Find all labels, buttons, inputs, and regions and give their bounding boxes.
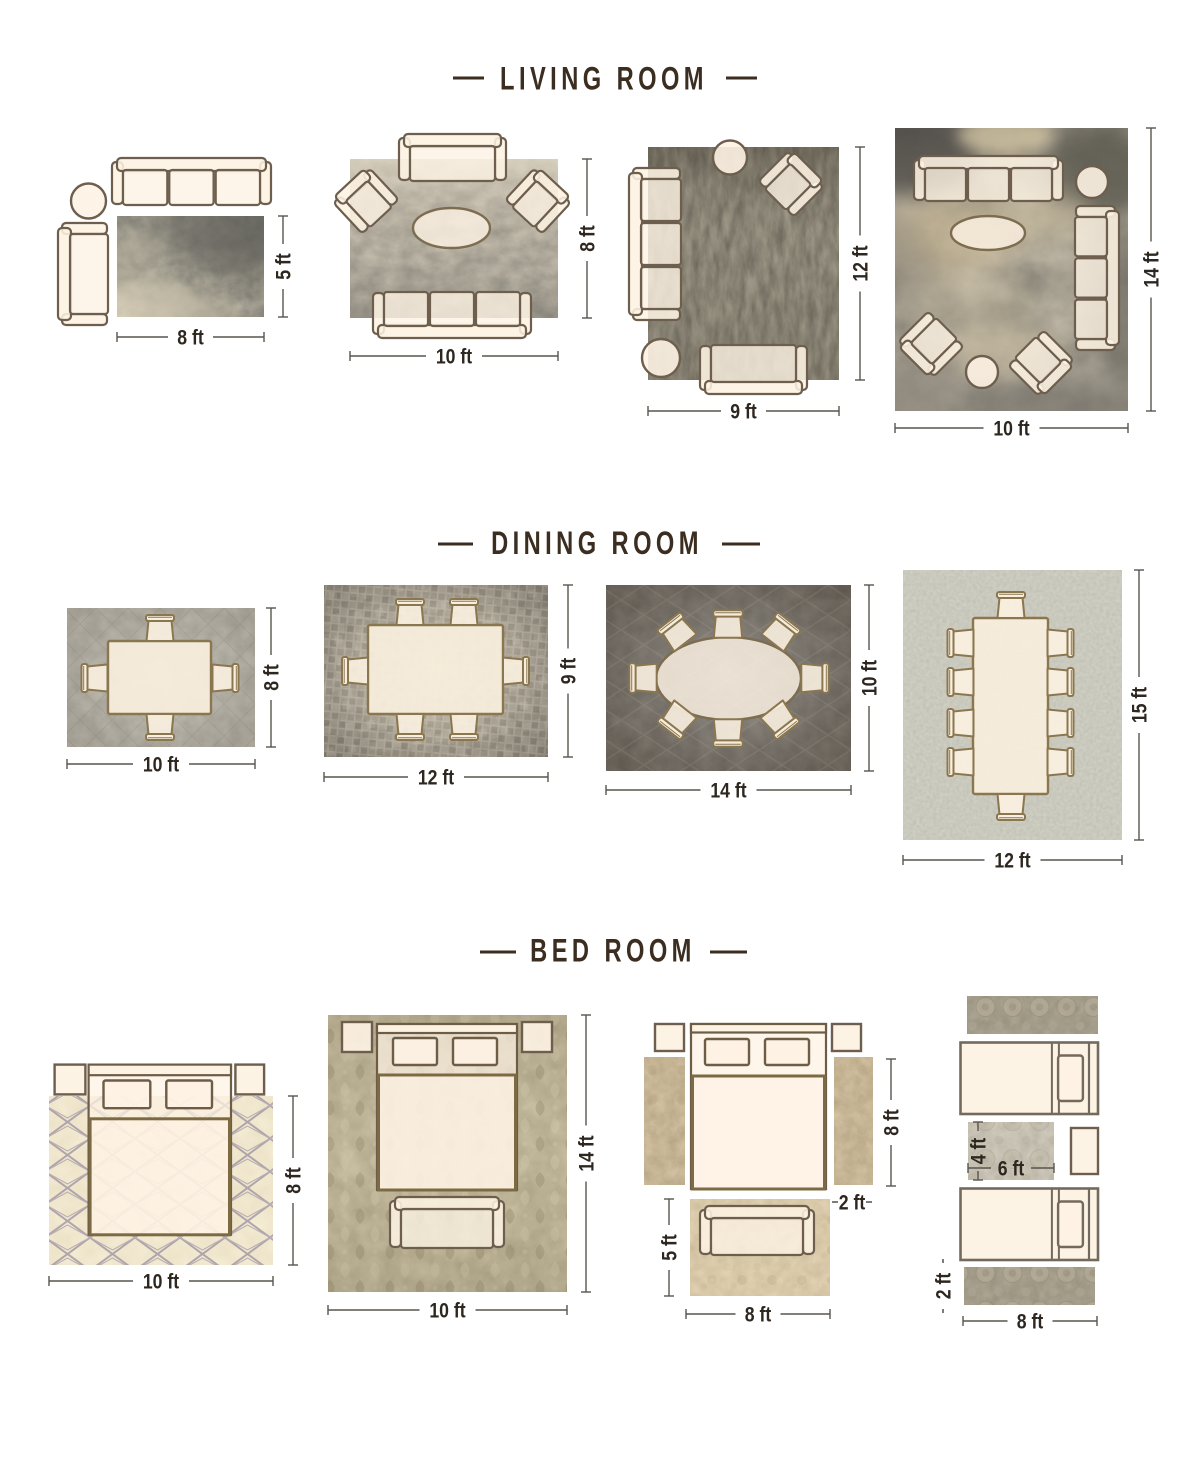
svg-text:14 ft: 14 ft xyxy=(1140,251,1164,288)
svg-text:9 ft: 9 ft xyxy=(557,657,581,684)
svg-text:8 ft: 8 ft xyxy=(282,1167,306,1194)
svg-text:12 ft: 12 ft xyxy=(418,766,455,790)
svg-text:8 ft: 8 ft xyxy=(1017,1310,1044,1334)
svg-text:2 ft: 2 ft xyxy=(932,1272,956,1299)
svg-text:10 ft: 10 ft xyxy=(993,417,1030,441)
svg-text:10 ft: 10 ft xyxy=(858,659,882,696)
svg-text:12 ft: 12 ft xyxy=(849,245,873,282)
svg-text:DINING ROOM: DINING ROOM xyxy=(491,526,703,561)
svg-text:8 ft: 8 ft xyxy=(177,326,204,350)
svg-text:8 ft: 8 ft xyxy=(260,664,284,691)
svg-text:4 ft: 4 ft xyxy=(967,1137,991,1164)
svg-text:5 ft: 5 ft xyxy=(658,1234,682,1261)
svg-text:8 ft: 8 ft xyxy=(576,225,600,252)
svg-text:10 ft: 10 ft xyxy=(429,1299,466,1323)
svg-text:8 ft: 8 ft xyxy=(745,1303,772,1327)
svg-text:14 ft: 14 ft xyxy=(710,779,747,803)
svg-text:12 ft: 12 ft xyxy=(994,849,1031,873)
svg-text:10 ft: 10 ft xyxy=(436,345,473,369)
svg-text:9 ft: 9 ft xyxy=(730,400,757,424)
svg-text:BED ROOM: BED ROOM xyxy=(530,933,696,968)
svg-text:2 ft: 2 ft xyxy=(839,1191,866,1215)
svg-text:5 ft: 5 ft xyxy=(272,253,296,280)
svg-text:LIVING ROOM: LIVING ROOM xyxy=(500,61,708,96)
svg-text:6 ft: 6 ft xyxy=(998,1157,1025,1181)
svg-text:8 ft: 8 ft xyxy=(880,1109,904,1136)
svg-text:15 ft: 15 ft xyxy=(1128,686,1152,723)
svg-text:10 ft: 10 ft xyxy=(143,753,180,777)
svg-text:10 ft: 10 ft xyxy=(143,1270,180,1294)
svg-text:14 ft: 14 ft xyxy=(575,1135,599,1172)
